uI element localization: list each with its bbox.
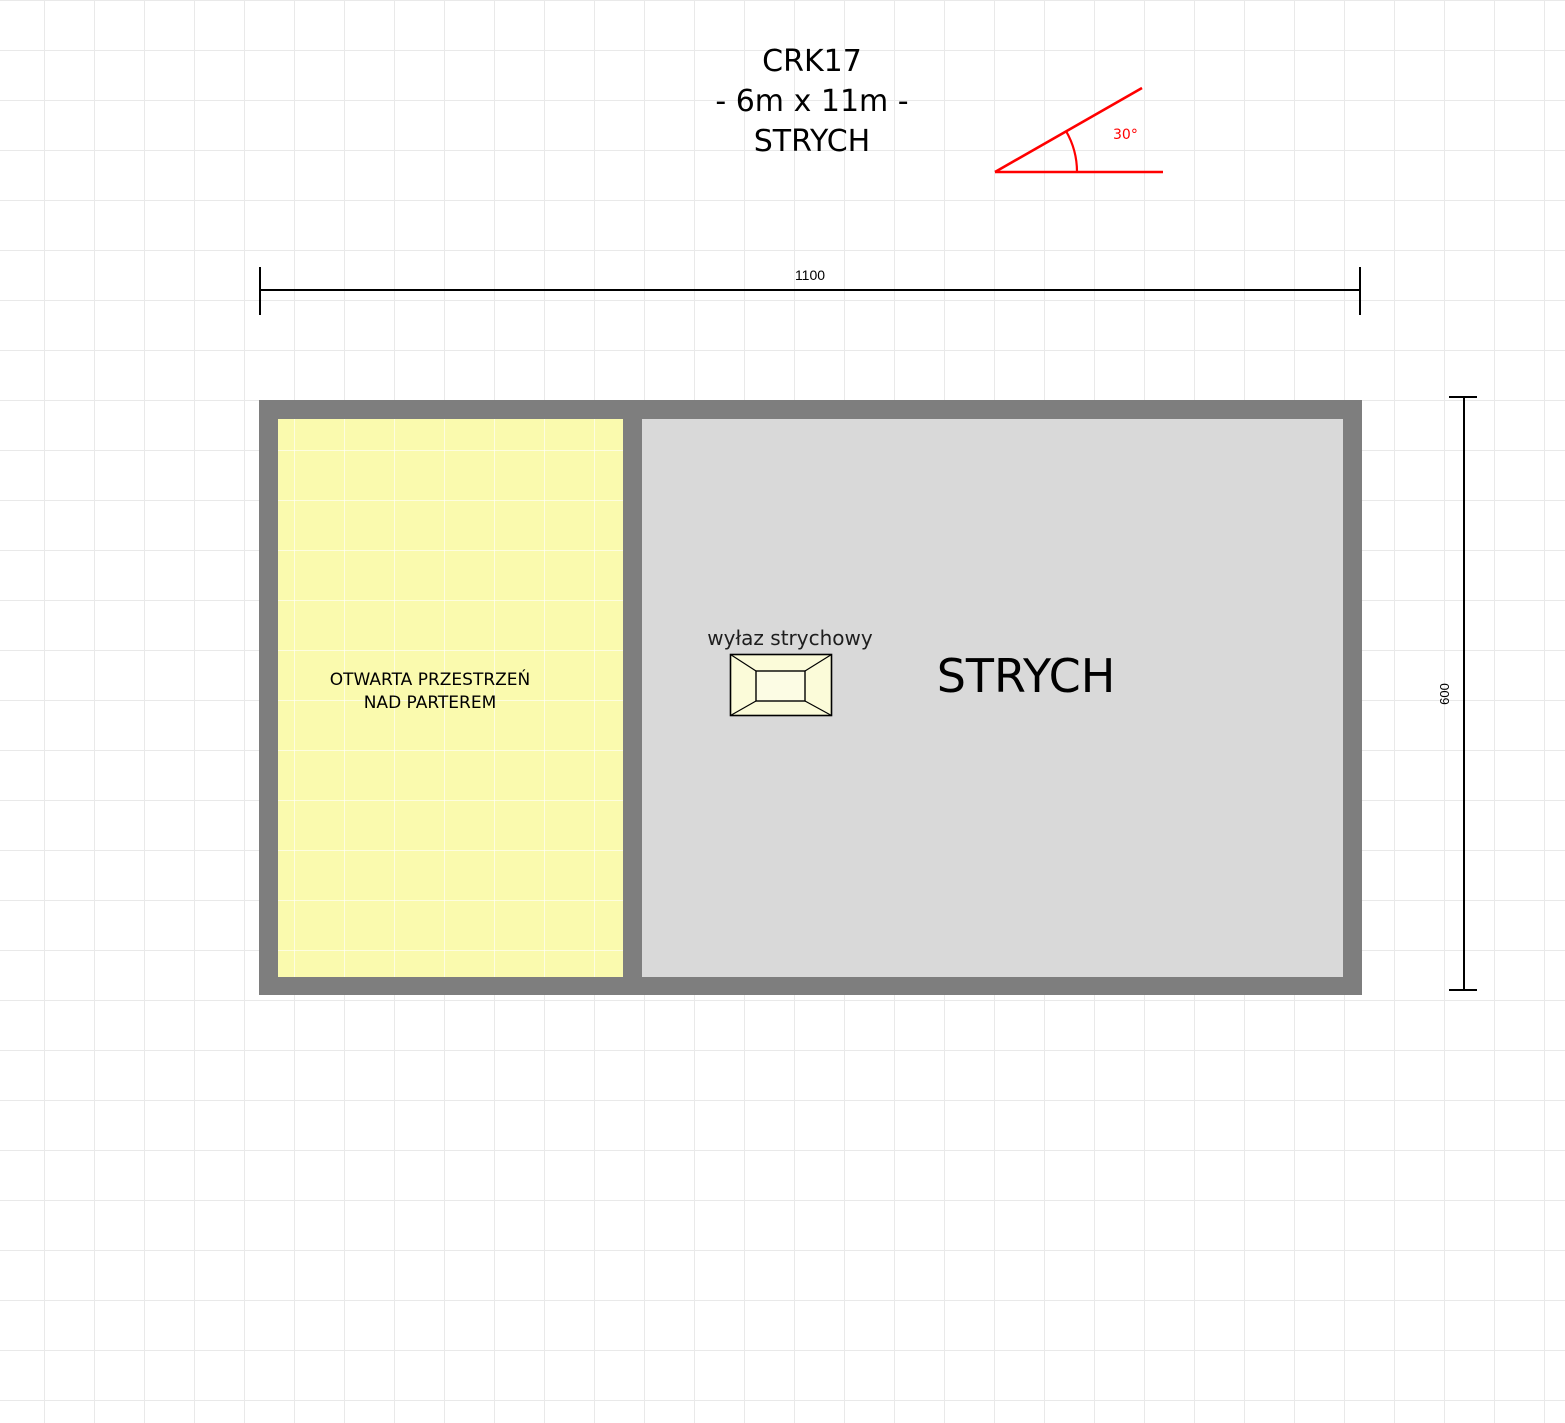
floor-plan-canvas[interactable]: CRK17 - 6m x 11m - STRYCH 30° 1100 600 O… [0, 0, 1565, 1423]
vertical-dimension-value: 600 [1429, 679, 1459, 709]
attic-hatch-inner-rect [756, 671, 805, 701]
vertical-dimension-tick-top [1449, 396, 1477, 398]
horizontal-dimension-line[interactable] [259, 289, 1361, 291]
drawing-title[interactable]: CRK17 - 6m x 11m - STRYCH [612, 42, 1012, 162]
angle-value-label: 30° [1113, 127, 1138, 143]
title-floor-name: STRYCH [612, 122, 1012, 162]
horizontal-dimension-value: 1100 [760, 267, 860, 283]
roof-pitch-angle-icon[interactable]: 30° [985, 78, 1175, 182]
room-attic-label: STRYCH [876, 647, 1176, 705]
room-open-space-label-line1: OTWARTA PRZESTRZEŃ [280, 669, 580, 692]
room-open-space-label-line2: NAD PARTEREM [280, 692, 580, 715]
vertical-dimension-tick-bottom [1449, 989, 1477, 991]
horizontal-dimension-tick-left [259, 267, 261, 315]
horizontal-dimension-tick-right [1359, 267, 1361, 315]
title-model-code: CRK17 [612, 42, 1012, 82]
building-wall-outline[interactable]: OTWARTA PRZESTRZEŃ NAD PARTEREM STRYCH w… [259, 400, 1362, 995]
room-open-space-label: OTWARTA PRZESTRZEŃ NAD PARTEREM [280, 669, 580, 715]
angle-arc [1066, 131, 1077, 172]
vertical-dimension-line[interactable] [1463, 397, 1465, 991]
attic-hatch-label: wyłaz strychowy [670, 625, 910, 651]
attic-hatch-symbol[interactable] [727, 651, 835, 721]
room-open-space[interactable]: OTWARTA PRZESTRZEŃ NAD PARTEREM [278, 419, 623, 977]
room-attic[interactable]: STRYCH wyłaz strychowy [642, 419, 1343, 977]
title-dimensions: - 6m x 11m - [612, 82, 1012, 122]
